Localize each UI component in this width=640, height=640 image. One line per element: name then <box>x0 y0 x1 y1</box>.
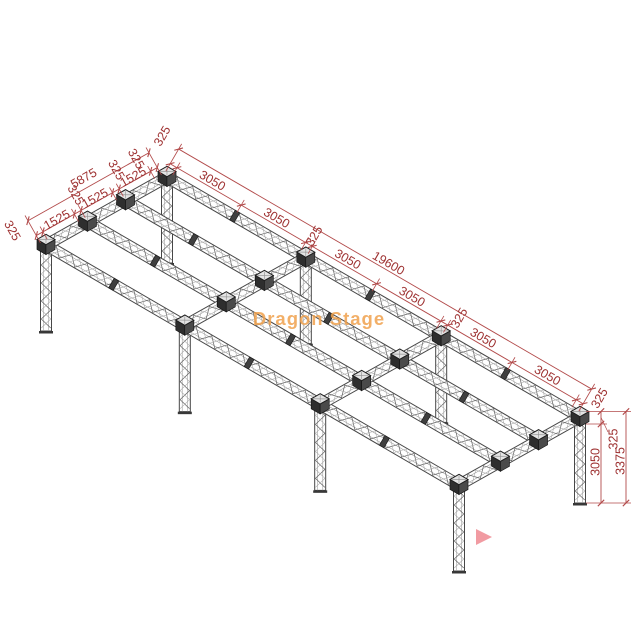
svg-text:325: 325 <box>606 429 620 450</box>
svg-text:325: 325 <box>151 124 174 149</box>
svg-text:3050: 3050 <box>332 246 363 272</box>
svg-text:3050: 3050 <box>261 205 292 231</box>
truss-connector-cubes <box>37 166 589 494</box>
svg-text:3050: 3050 <box>197 168 228 194</box>
svg-text:325: 325 <box>125 146 147 171</box>
svg-text:5875: 5875 <box>68 165 99 191</box>
svg-text:3050: 3050 <box>588 448 602 476</box>
watermark-text: Dragon Stage <box>253 308 385 329</box>
svg-text:19600: 19600 <box>370 249 407 279</box>
truss-beams <box>43 172 583 490</box>
drawing-canvas: 3050305030503050305030503253253253251960… <box>0 0 640 640</box>
svg-text:3050: 3050 <box>532 362 563 388</box>
svg-text:3375: 3375 <box>613 447 627 475</box>
svg-text:3050: 3050 <box>397 284 428 310</box>
next-arrow-icon[interactable] <box>476 529 492 545</box>
svg-text:3050: 3050 <box>468 325 499 351</box>
truss-technical-drawing: 3050305030503050305030503253253253251960… <box>0 0 640 640</box>
svg-text:325: 325 <box>1 218 23 243</box>
svg-text:325: 325 <box>303 223 326 248</box>
